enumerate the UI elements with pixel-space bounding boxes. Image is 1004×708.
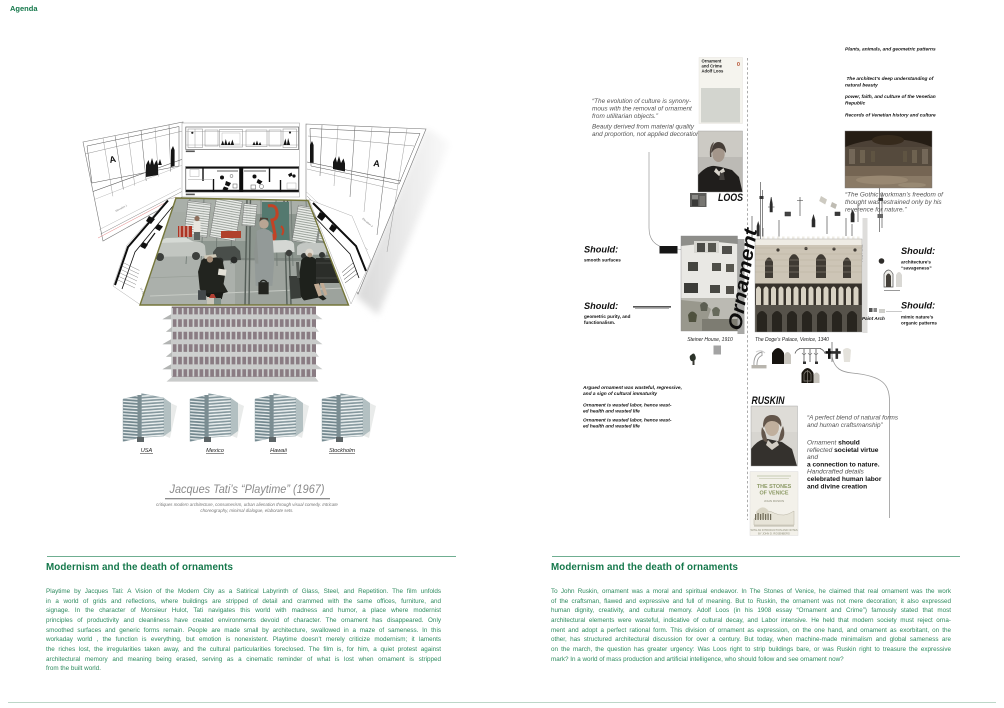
svg-text:Ornament is wasted labor, henc: Ornament is wasted labor, hence wast- <box>583 403 672 409</box>
svg-text:The Doge’s Palace, Venice, 134: The Doge’s Palace, Venice, 1340 <box>755 337 829 343</box>
svg-text:USA: USA <box>141 448 153 454</box>
svg-text:“A perfect blend of natural fo: “A perfect blend of natural forms <box>807 415 899 422</box>
svg-text:Jacques Tati’s “Playtime” (196: Jacques Tati’s “Playtime” (1967) <box>169 484 325 496</box>
svg-text:thought was restrained only by: thought was restrained only by his <box>845 199 942 206</box>
svg-text:Plants, animals, and geometric: Plants, animals, and geometric patterns <box>845 47 936 53</box>
svg-text:Records of Venetian history an: Records of Venetian history and culture <box>845 113 936 119</box>
svg-text:The architect’s deep understan: The architect’s deep understanding of <box>847 76 934 82</box>
svg-text:Mexico: Mexico <box>206 448 224 454</box>
svg-text:choreography, minimal dialogue: choreography, minimal dialogue, elaborat… <box>200 508 293 513</box>
svg-text:OF VENICE: OF VENICE <box>759 491 788 497</box>
svg-text:THE STONES: THE STONES <box>757 484 792 490</box>
svg-text:and human craftsmanship”: and human craftsmanship” <box>807 422 884 429</box>
svg-text:WITH AN INTRODUCTION AND NOTES: WITH AN INTRODUCTION AND NOTES <box>750 528 797 532</box>
svg-text:Ornament should: Ornament should <box>807 440 860 447</box>
svg-text:celebrated human labor: celebrated human labor <box>807 476 882 483</box>
svg-text:0: 0 <box>737 62 740 68</box>
svg-text:Hawaii: Hawaii <box>270 448 288 454</box>
svg-text:organic patterns: organic patterns <box>901 321 937 326</box>
svg-text:“The evolution of culture is s: “The evolution of culture is synony- <box>592 98 691 105</box>
svg-text:LOOS: LOOS <box>718 192 744 204</box>
svg-text:power, faith, and culture of t: power, faith, and culture of the Venetia… <box>844 94 936 100</box>
svg-text:Adolf Loos: Adolf Loos <box>702 69 725 74</box>
svg-text:Ornament is wasted labor, henc: Ornament is wasted labor, hence wast- <box>583 418 672 424</box>
svg-text:architecture’s: architecture’s <box>901 260 931 265</box>
svg-text:critiques modern architecture,: critiques modern architecture, consumeri… <box>156 502 338 507</box>
svg-text:a connection to nature.: a connection to nature. <box>807 461 880 468</box>
svg-text:functionalism.: functionalism. <box>584 320 615 325</box>
svg-text:Should:: Should: <box>584 245 618 255</box>
svg-text:reverence for nature.”: reverence for nature.” <box>845 207 907 214</box>
svg-text:mous with the removal of ornam: mous with the removal of ornament <box>592 106 692 113</box>
svg-text:Argued ornament was wasteful,: Argued ornament was wasteful, regressive… <box>582 385 682 391</box>
svg-text:ed health and wasted life: ed health and wasted life <box>583 409 640 415</box>
svg-text:Should:: Should: <box>584 301 618 311</box>
svg-text:reflected societal virtue: reflected societal virtue <box>807 447 879 454</box>
svg-text:JOHN RUSKIN: JOHN RUSKIN <box>764 499 784 503</box>
svg-text:smooth surfaces: smooth surfaces <box>584 258 621 263</box>
svg-text:Beauty derived from material q: Beauty derived from material quality <box>592 124 695 131</box>
svg-text:from utilitarian objects.”: from utilitarian objects.” <box>592 113 659 120</box>
svg-text:“The Gothic workman’s freedom: “The Gothic workman’s freedom of <box>845 192 944 199</box>
svg-text:BY JOHN D. ROSENBERG: BY JOHN D. ROSENBERG <box>758 532 790 536</box>
svg-text:Should:: Should: <box>901 301 935 311</box>
svg-text:and a sign of cultural immatur: and a sign of cultural immaturity <box>583 391 657 397</box>
svg-text:Paint Arch: Paint Arch <box>862 316 885 321</box>
svg-text:and divine creation: and divine creation <box>807 483 867 490</box>
svg-text:ed health and wasted life: ed health and wasted life <box>583 424 640 430</box>
svg-text:and: and <box>807 454 818 461</box>
svg-text:Handcrafted details: Handcrafted details <box>807 469 865 476</box>
svg-text:Should:: Should: <box>901 246 935 256</box>
svg-text:Steiner House, 1910: Steiner House, 1910 <box>687 337 733 343</box>
svg-text:and proportion, not applied de: and proportion, not applied decoration. <box>592 131 701 138</box>
svg-text:“savageness”: “savageness” <box>901 266 932 271</box>
svg-text:Republic: Republic <box>845 101 866 107</box>
svg-text:geometric purity, and: geometric purity, and <box>584 314 631 319</box>
svg-text:RUSKIN: RUSKIN <box>752 395 786 407</box>
svg-text:mimic nature’s: mimic nature’s <box>901 315 934 320</box>
svg-text:natural beauty: natural beauty <box>845 83 878 89</box>
svg-text:Stockholm: Stockholm <box>329 448 355 454</box>
